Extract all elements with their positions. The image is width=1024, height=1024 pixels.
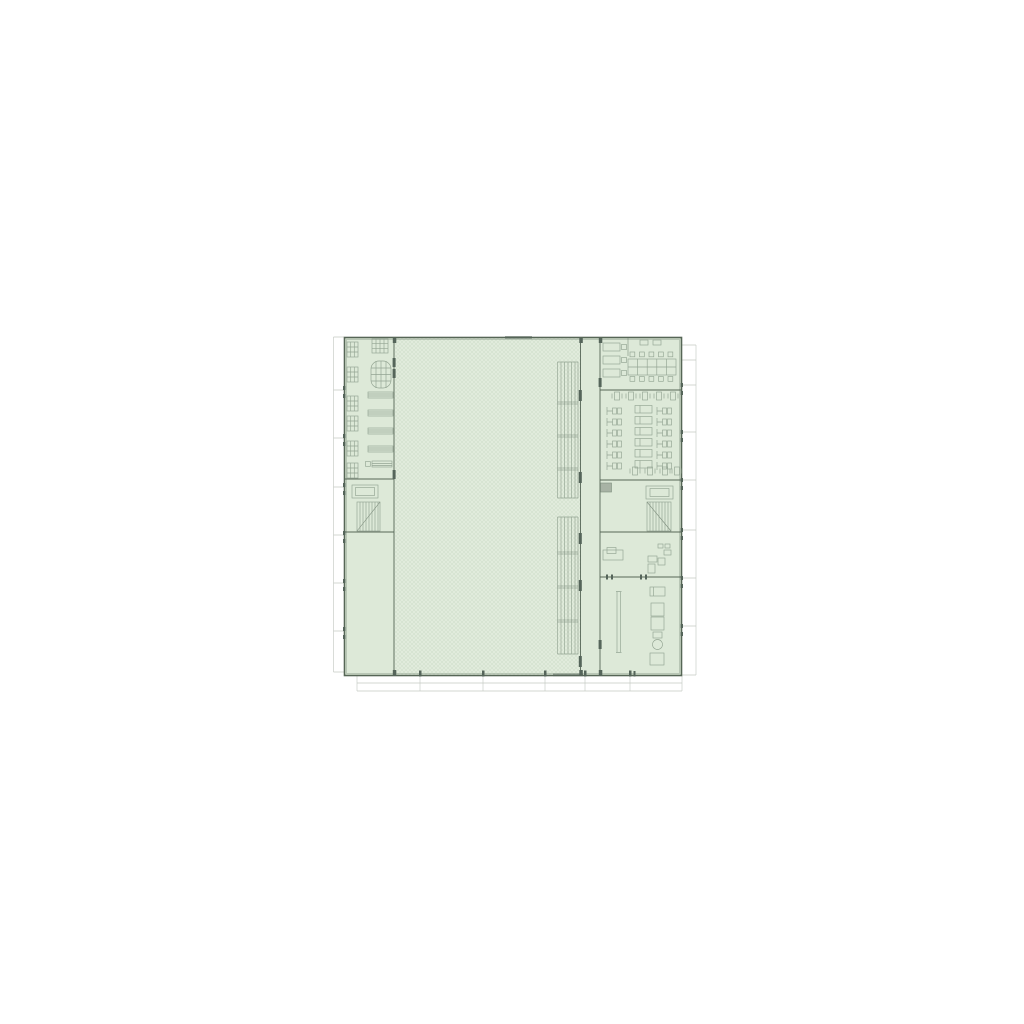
- left-terrace-band: [334, 337, 345, 672]
- floor-plan-drawing: [0, 0, 1024, 1024]
- top-wall-door-mark: [505, 336, 532, 339]
- bottom-terrace-band: [357, 676, 682, 691]
- right-terrace-band: [682, 345, 696, 675]
- central-hall-floor: [394, 338, 581, 675]
- bottom-wall-door-mark: [553, 674, 583, 677]
- floor-fills: [345, 338, 682, 675]
- left-wing-floor: [345, 338, 394, 675]
- page-canvas: [0, 0, 1024, 1024]
- right-wing-floor: [581, 338, 682, 675]
- duct-shaft: [601, 483, 612, 492]
